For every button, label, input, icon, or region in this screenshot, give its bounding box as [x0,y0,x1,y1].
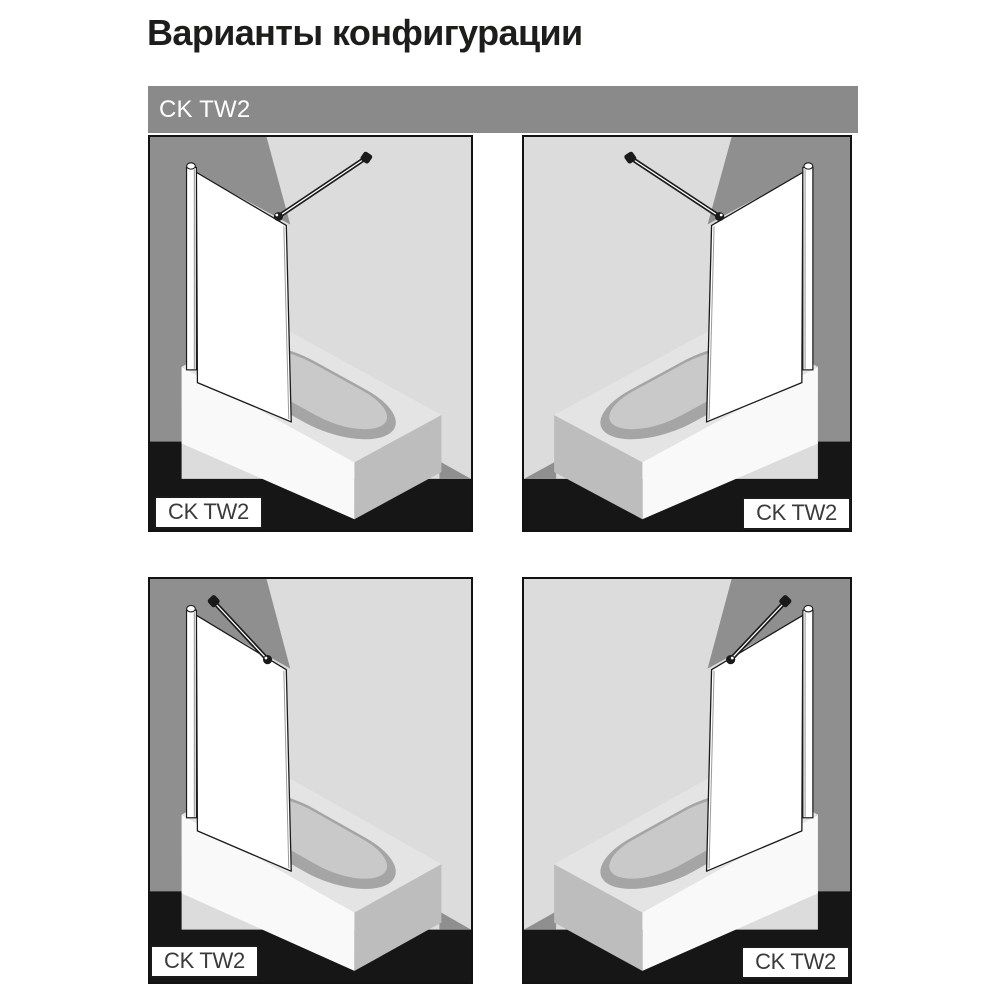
bathtub-screen-diagram-right-perpendicular [524,137,850,530]
panel-label: CK TW2 [741,946,850,979]
panel-label: CK TW2 [150,945,259,978]
diagram-panel-top-right: CK TW2 [522,135,852,532]
diagram-panel-top-left: CK TW2 [148,135,473,532]
diagram-panel-bottom-left: CK TW2 [148,577,473,984]
section-header-label: CK TW2 [148,96,250,124]
bathtub-screen-diagram-left-angled [150,579,471,982]
diagram-panel-bottom-right: CK TW2 [522,577,852,984]
section-header-bar: CK TW2 [148,86,858,133]
panel-label: CK TW2 [742,497,851,530]
page-title: Варианты конфигурации [147,12,583,54]
bathtub-screen-diagram-left-perpendicular [150,137,471,530]
panel-label: CK TW2 [154,496,263,529]
bathtub-screen-diagram-right-angled [524,579,850,982]
